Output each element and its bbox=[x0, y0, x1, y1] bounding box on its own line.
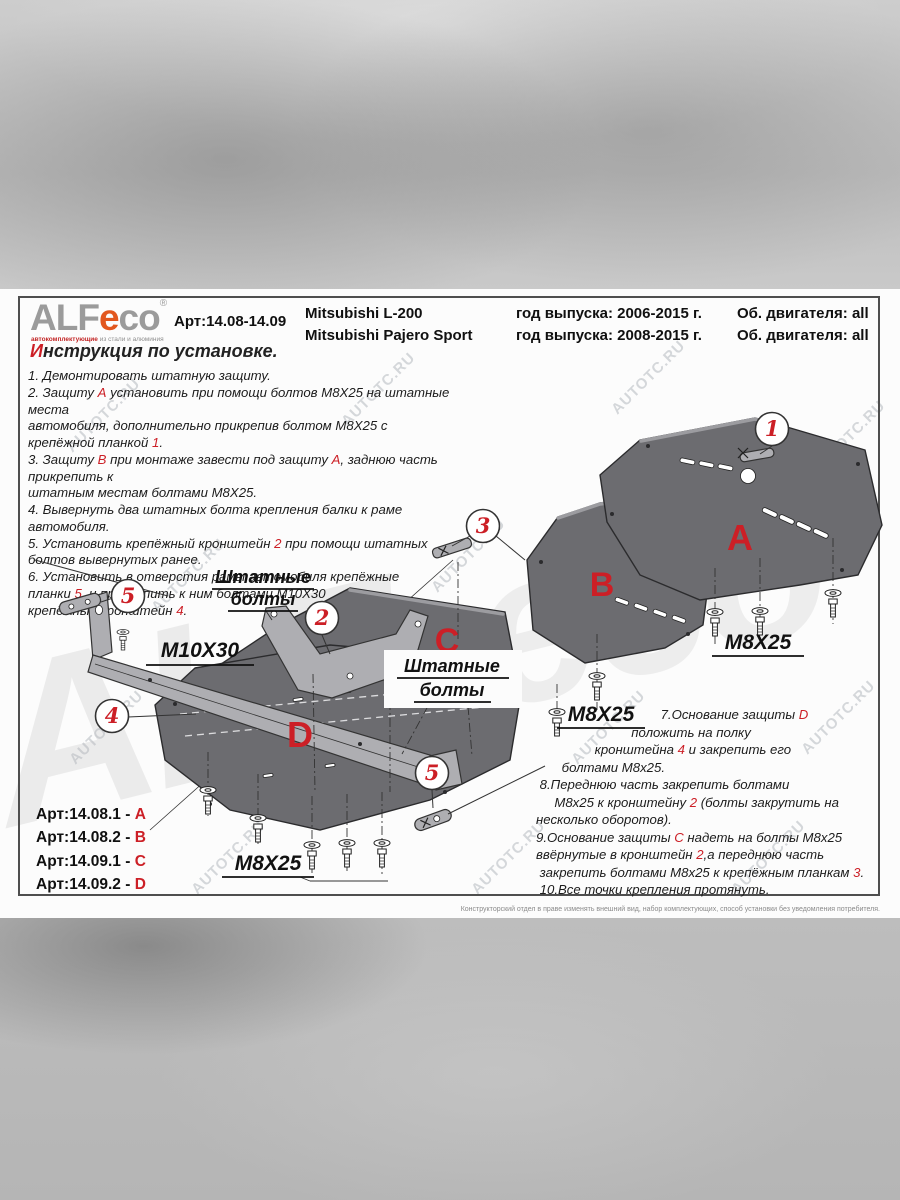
logo-alf: ALF bbox=[30, 297, 99, 338]
svg-text:M8X25: M8X25 bbox=[568, 703, 635, 726]
model-2: Mitsubishi Pajero Sport bbox=[305, 325, 473, 347]
engine-1: Об. двигателя: all bbox=[737, 303, 869, 325]
svg-text:M8X25: M8X25 bbox=[235, 852, 302, 875]
year-1: год выпуска: 2006-2015 г. bbox=[516, 303, 702, 325]
year-2: год выпуска: 2008-2015 г. bbox=[516, 325, 702, 347]
leader-line bbox=[35, 560, 168, 596]
plate-b-letter: B bbox=[590, 566, 615, 604]
alfeco-logo: ALFeco® bbox=[30, 299, 167, 336]
instruction-sheet: ALF eco AUTOTC.RU AUTOTC.RU AUTOTC.RU AU… bbox=[0, 289, 900, 918]
svg-text:4: 4 bbox=[105, 703, 120, 728]
production-years: год выпуска: 2006-2015 г. год выпуска: 2… bbox=[516, 303, 702, 347]
svg-text:2: 2 bbox=[314, 605, 330, 630]
bolt-icon bbox=[117, 629, 129, 650]
assembly-diagram: A B C D Штатные болты Штатные болты M1 bbox=[0, 384, 900, 899]
callout-1: 1 bbox=[756, 413, 789, 446]
label-m8x25-bottom: M8X25 bbox=[222, 852, 314, 877]
callout-5-left: 5 bbox=[112, 580, 145, 613]
svg-text:5: 5 bbox=[121, 583, 136, 608]
vehicle-models: Mitsubishi L-200 Mitsubishi Pajero Sport bbox=[305, 303, 473, 347]
svg-text:M10X30: M10X30 bbox=[161, 639, 240, 662]
callout-2: 2 bbox=[306, 602, 339, 635]
logo-e: e bbox=[99, 297, 119, 338]
svg-text:1: 1 bbox=[765, 416, 780, 441]
plate-d-letter: D bbox=[287, 714, 313, 755]
page-title: Инструкция по установке. bbox=[30, 341, 278, 362]
mounting-plate-3 bbox=[431, 537, 472, 559]
svg-text:M8X25: M8X25 bbox=[725, 631, 792, 654]
footer-disclaimer: Конструкторский отдел в праве изменять в… bbox=[461, 906, 880, 913]
svg-text:Штатные: Штатные bbox=[404, 656, 500, 676]
step-1: 1. Демонтировать штатную защиту. bbox=[28, 368, 474, 385]
svg-text:3: 3 bbox=[476, 513, 491, 538]
svg-text:болты: болты bbox=[420, 680, 485, 700]
model-1: Mitsubishi L-200 bbox=[305, 303, 473, 325]
label-m10x30: M10X30 bbox=[146, 639, 254, 665]
mounting-plate-5-right bbox=[413, 808, 453, 832]
label-m8x25-right: M8X25 bbox=[712, 631, 804, 656]
plate-a bbox=[600, 418, 882, 600]
svg-text:болты: болты bbox=[231, 589, 296, 609]
callout-5-right: 5 bbox=[416, 757, 449, 790]
label-m8x25-middle: M8X25 bbox=[557, 703, 645, 728]
engine-volumes: Об. двигателя: all Об. двигателя: all bbox=[737, 303, 869, 347]
svg-text:5: 5 bbox=[425, 760, 440, 785]
blurred-background-bottom bbox=[0, 918, 900, 1200]
svg-text:Штатные: Штатные bbox=[215, 567, 311, 587]
plate-a-letter: A bbox=[727, 517, 753, 558]
logo-registered-mark: ® bbox=[160, 298, 167, 309]
stock-bolts-label-top: Штатные болты bbox=[212, 567, 314, 611]
stock-bolts-label-center: Штатные болты bbox=[384, 650, 522, 708]
callout-4: 4 bbox=[96, 700, 129, 733]
callout-3: 3 bbox=[467, 510, 500, 543]
engine-2: Об. двигателя: all bbox=[737, 325, 869, 347]
logo-co: co bbox=[119, 297, 160, 338]
page: ALF eco AUTOTC.RU AUTOTC.RU AUTOTC.RU AU… bbox=[0, 0, 900, 1200]
blurred-background-top bbox=[0, 0, 900, 289]
article-number: Арт:14.08-14.09 bbox=[174, 313, 286, 330]
